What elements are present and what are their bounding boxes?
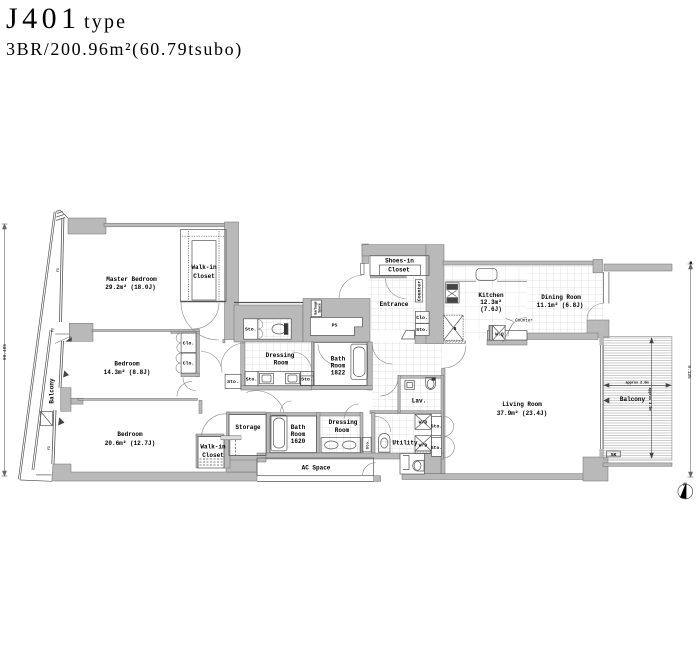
svg-text:99.485: 99.485 (2, 344, 8, 361)
svg-text:Sto.: Sto. (431, 445, 443, 451)
svg-text:Clo.: Clo. (183, 341, 195, 347)
svg-text:Room: Room (331, 363, 346, 370)
svg-text:Sto.: Sto. (416, 327, 428, 333)
svg-text:Bath: Bath (331, 356, 346, 363)
svg-text:R: R (454, 326, 457, 332)
svg-text:Sto.: Sto. (301, 377, 313, 383)
svg-text:Bedroom: Bedroom (117, 431, 143, 438)
svg-text:12.3m²: 12.3m² (480, 299, 502, 306)
svg-text:Dressing: Dressing (329, 419, 358, 426)
svg-text:Clo.: Clo. (416, 315, 428, 321)
svg-text:Walk-in: Walk-in (200, 444, 226, 451)
svg-text:Utility: Utility (392, 440, 418, 447)
svg-text:Shoes-in: Shoes-in (385, 258, 414, 265)
svg-text:Kitchen: Kitchen (478, 292, 504, 299)
svg-text:Room: Room (335, 427, 350, 434)
svg-text:(7.6J): (7.6J) (480, 306, 502, 313)
svg-text:Closet: Closet (388, 267, 410, 274)
svg-text:Counter: Counter (515, 320, 533, 324)
svg-text:AC Space: AC Space (302, 465, 331, 472)
svg-text:1822: 1822 (331, 370, 346, 377)
svg-text:11.1m² (6.8J): 11.1m² (6.8J) (537, 302, 584, 309)
svg-text:Sto.: Sto. (246, 377, 258, 383)
svg-text:Lav.: Lav. (412, 398, 426, 405)
svg-text:approx 3.9m: approx 3.9m (647, 387, 652, 410)
svg-text:Balcony: Balcony (620, 396, 646, 403)
svg-text:Closet: Closet (193, 273, 215, 280)
svg-text:W.Q: W.Q (495, 332, 504, 338)
svg-text:9.135: 9.135 (686, 365, 692, 379)
svg-text:W/D: W/D (419, 420, 428, 426)
svg-text:FD: FD (56, 268, 60, 272)
svg-text:20.6m² (12.7J): 20.6m² (12.7J) (105, 440, 155, 447)
svg-text:Storage: Storage (235, 424, 261, 431)
svg-text:J401: J401 (6, 2, 81, 35)
svg-text:Walk-in: Walk-in (191, 264, 217, 271)
svg-text:Room: Room (291, 431, 306, 438)
svg-text:FD: FD (51, 328, 55, 332)
svg-text:W/D: W/D (419, 443, 428, 449)
svg-text:Master Bedroom: Master Bedroom (106, 276, 157, 283)
svg-text:37.9m² (23.4J): 37.9m² (23.4J) (497, 410, 547, 417)
svg-text:Balcony: Balcony (49, 378, 56, 404)
svg-text:29.2m² (18.0J): 29.2m² (18.0J) (105, 284, 155, 291)
svg-text:Sto.: Sto. (367, 440, 371, 450)
svg-text:Bath: Bath (291, 424, 306, 431)
svg-text:Sto.: Sto. (227, 379, 239, 385)
svg-text:FD: FD (47, 446, 51, 450)
svg-text:Closet: Closet (202, 452, 224, 459)
svg-text:1620: 1620 (291, 438, 306, 445)
svg-text:approx 2.0m: approx 2.0m (625, 381, 648, 386)
svg-text:3BR/200.96m²(60.79tsubo): 3BR/200.96m²(60.79tsubo) (6, 39, 243, 60)
svg-text:Room: Room (274, 360, 289, 367)
svg-text:Dining Room: Dining Room (541, 294, 581, 301)
svg-text:Living Room: Living Room (502, 401, 542, 408)
svg-text:Clo.: Clo. (183, 361, 195, 367)
svg-text:Dressing: Dressing (266, 352, 295, 359)
svg-text:14.3m² (8.8J): 14.3m² (8.8J) (104, 369, 151, 376)
svg-text:Space: Space (318, 303, 322, 313)
svg-text:Sto.: Sto. (431, 424, 443, 430)
svg-text:SK: SK (611, 452, 617, 458)
svg-text:Bedroom: Bedroom (114, 361, 140, 368)
svg-text:Sto.: Sto. (245, 327, 257, 333)
svg-text:Counter: Counter (416, 281, 422, 301)
svg-text:PS: PS (332, 323, 338, 329)
svg-text:Entrance: Entrance (380, 301, 409, 308)
svg-text:type: type (84, 11, 127, 33)
